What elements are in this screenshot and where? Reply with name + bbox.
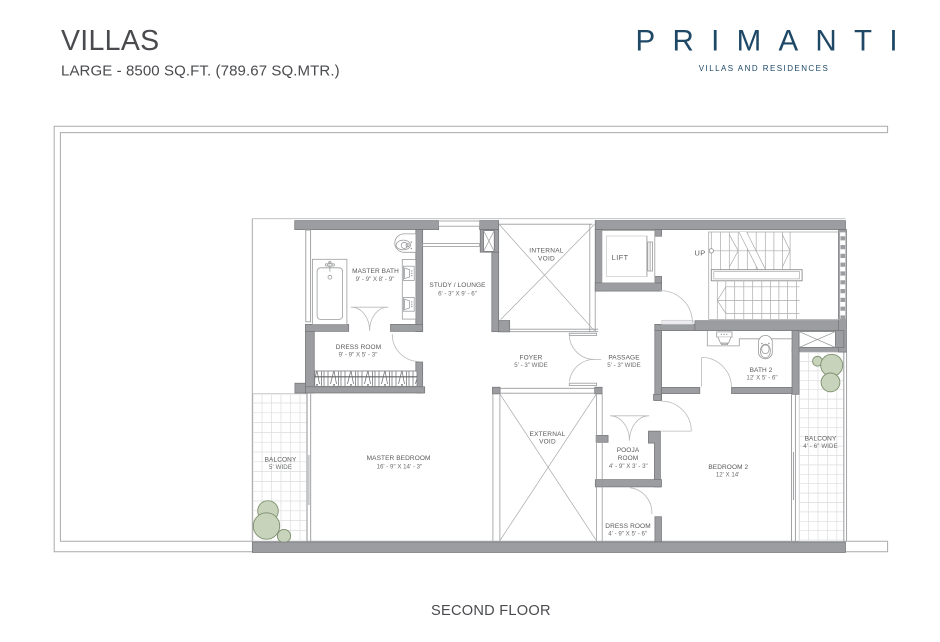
svg-text:LIFT: LIFT — [612, 253, 629, 262]
svg-text:POOJA: POOJA — [617, 447, 640, 454]
svg-text:DRESS ROOM: DRESS ROOM — [336, 344, 381, 351]
svg-text:ROOM: ROOM — [618, 455, 639, 462]
svg-text:12' X 5' - 6": 12' X 5' - 6" — [746, 374, 777, 381]
svg-text:VILLAS AND RESIDENCES: VILLAS AND RESIDENCES — [699, 64, 830, 73]
svg-text:MASTER BEDROOM: MASTER BEDROOM — [367, 455, 431, 462]
svg-text:STUDY / LOUNGE: STUDY / LOUNGE — [429, 282, 486, 289]
svg-text:9' - 9" X 5' - 3": 9' - 9" X 5' - 3" — [339, 351, 378, 358]
svg-text:INTERNAL: INTERNAL — [529, 247, 564, 254]
svg-text:12' X 14': 12' X 14' — [716, 472, 740, 479]
svg-text:9' - 9" X 8' - 9": 9' - 9" X 8' - 9" — [356, 276, 395, 283]
svg-text:VOID: VOID — [539, 438, 556, 445]
svg-text:6' - 3" X 9' - 6": 6' - 3" X 9' - 6" — [438, 290, 477, 297]
svg-text:5' - 3" WIDE: 5' - 3" WIDE — [514, 362, 547, 369]
svg-text:PRIMANTI: PRIMANTI — [636, 25, 915, 58]
svg-text:4' - 9" X 3' - 3": 4' - 9" X 3' - 3" — [609, 463, 648, 470]
svg-text:EXTERNAL: EXTERNAL — [530, 431, 566, 438]
svg-text:PASSAGE: PASSAGE — [608, 354, 640, 361]
svg-text:VILLAS: VILLAS — [61, 25, 159, 57]
svg-text:BALCONY: BALCONY — [805, 435, 837, 442]
svg-text:4' - 9" X 5' - 6": 4' - 9" X 5' - 6" — [608, 531, 647, 538]
svg-text:5' - 3" WIDE: 5' - 3" WIDE — [607, 362, 640, 369]
svg-text:5' WIDE: 5' WIDE — [269, 464, 292, 471]
svg-text:MASTER BATH: MASTER BATH — [352, 268, 399, 275]
svg-text:16' - 9" X 14' - 3": 16' - 9" X 14' - 3" — [377, 463, 423, 470]
svg-text:BATH 2: BATH 2 — [750, 367, 773, 374]
svg-text:BALCONY: BALCONY — [265, 456, 297, 463]
svg-text:VOID: VOID — [538, 256, 555, 263]
svg-text:BEDROOM 2: BEDROOM 2 — [708, 464, 748, 471]
svg-text:SECOND FLOOR: SECOND FLOOR — [431, 603, 551, 619]
svg-text:UP: UP — [695, 249, 706, 258]
svg-text:LARGE - 8500 SQ.FT. (789.67 SQ: LARGE - 8500 SQ.FT. (789.67 SQ.MTR.) — [61, 63, 340, 80]
svg-text:4' - 6" WIDE: 4' - 6" WIDE — [803, 443, 838, 450]
svg-text:FOYER: FOYER — [520, 354, 543, 361]
svg-text:DRESS ROOM: DRESS ROOM — [605, 523, 650, 530]
